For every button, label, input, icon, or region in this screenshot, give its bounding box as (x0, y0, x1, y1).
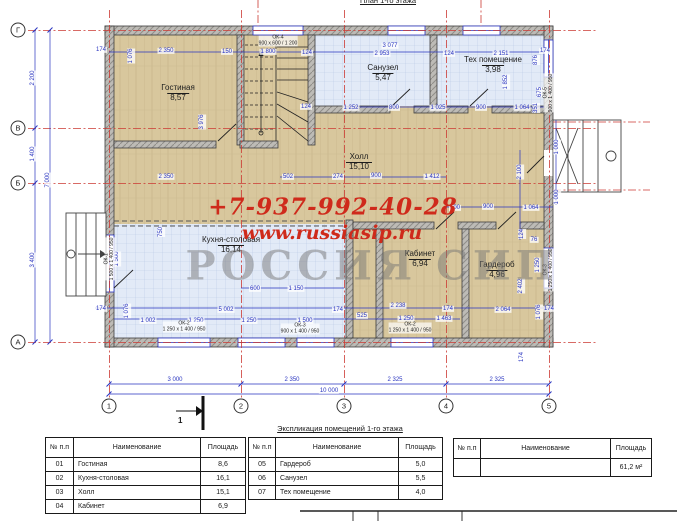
col-header-num: № п.п (249, 438, 276, 458)
cell-name: Санузел (276, 472, 399, 486)
dimension-label: 1 400 (29, 146, 37, 161)
col-header-name: Наименование (276, 438, 399, 458)
axis-bubble: Г (11, 23, 26, 38)
room-area: 3,98 (482, 65, 504, 75)
dimension-label: 1 076 (535, 304, 543, 319)
explication-table-right: № п.п Наименование Площадь 05 Гардероб 5… (248, 437, 443, 500)
cell-name: Холл (74, 486, 201, 500)
axis-bubble: 2 (234, 399, 249, 414)
window-tag-size: 1 250 x 1 400 / 950 (163, 327, 206, 333)
room-name: Холл (346, 153, 372, 162)
cell-num: 02 (46, 472, 74, 486)
cell-num: 05 (249, 458, 276, 472)
dimension-label: 351 (532, 103, 540, 113)
dimension-label: 2 350 (157, 48, 174, 54)
dimension-label: 876 (532, 55, 540, 65)
cell-area: 8,6 (201, 458, 246, 472)
explication-caption: Экспликация помещений 1-го этажа (277, 424, 403, 433)
cell-num: 01 (46, 458, 74, 472)
dimension-label: 2 238 (389, 303, 406, 309)
drawing-title: План 1-го этажа (360, 0, 416, 5)
dimension-label: 502 (282, 174, 294, 180)
window-tag-size: 900 x 1 400 / 950 (549, 74, 555, 113)
dimension-label: 174 (332, 307, 344, 313)
dimension-label: 1 800 (259, 49, 276, 55)
room-area: 15,10 (346, 162, 372, 172)
dimension-label: 124 (300, 104, 312, 110)
dimension-label: 2 200 (29, 70, 37, 85)
dimension-label: 1 076 (127, 48, 135, 63)
room-area: 8,57 (167, 93, 189, 103)
axis-bubble: 1 (102, 399, 117, 414)
floors-layer (114, 35, 544, 338)
dimension-label: 274 (332, 174, 344, 180)
dimension-label: 2 325 (386, 377, 403, 383)
window-tag: ОК-1 1 500 x 1 400 / 950 (105, 238, 116, 281)
cell-total-area: 61,2 м² (611, 459, 652, 477)
section-label: 1 (178, 416, 182, 425)
cell-num: 03 (46, 486, 74, 500)
room-label: Санузел 5,47 (367, 64, 398, 83)
window-tag: ОК-2 1 250 x 1 400 / 950 (163, 322, 206, 333)
cell-area: 15,1 (201, 486, 246, 500)
dimension-label: 1 250 (240, 318, 257, 324)
dimension-label: 1 463 (435, 316, 452, 322)
col-header-num: № п.п (454, 439, 481, 459)
room-name: Санузел (367, 64, 398, 73)
dimension-label: 150 (221, 49, 233, 55)
table-row: 06 Санузел 5,5 (249, 472, 443, 486)
cell-area: 5,5 (399, 472, 443, 486)
dimension-label: 2 350 (157, 174, 174, 180)
cell-num: 06 (249, 472, 276, 486)
cell-num: 04 (46, 500, 74, 514)
table-row: 03 Холл 15,1 (46, 486, 246, 500)
col-header-area: Площадь (201, 438, 246, 458)
window-tag: ОК-3 900 x 1 400 / 950 (281, 324, 320, 335)
dimension-label: 2 100 (516, 164, 524, 179)
window-tag-size: 1 500 x 1 400 / 950 (110, 238, 116, 281)
dimension-label: 3 400 (29, 252, 37, 267)
dimension-label: 2 151 (492, 51, 509, 57)
dimension-label: 750 (157, 227, 165, 237)
cell-name: Кабинет (74, 500, 201, 514)
dimension-label: 5 002 (217, 307, 234, 313)
col-header-name: Наименование (481, 439, 611, 459)
cell-area: 5,0 (399, 458, 443, 472)
dimension-label: 525 (356, 313, 368, 319)
dimension-label: 174 (539, 48, 551, 54)
cell-name: Тех помещение (276, 486, 399, 500)
dimension-label: 1 002 (139, 318, 156, 324)
dimension-label: 3 976 (198, 114, 206, 129)
window-tag-size: 1 250 x 1 400 / 950 (389, 328, 432, 334)
blueprint-canvas: План 1-го этажа Гостиная 8,57 Санузел 5,… (0, 0, 677, 521)
axis-bubble: 5 (542, 399, 557, 414)
dimension-label: 174 (543, 306, 555, 312)
dimension-label: 174 (442, 306, 454, 312)
dimension-label: 1 000 (553, 139, 561, 154)
dimension-label: 174 (95, 47, 107, 53)
room-label: Гостиная 8,57 (161, 84, 195, 103)
table-row: 01 Гостиная 8,6 (46, 458, 246, 472)
col-header-name: Наименование (74, 438, 201, 458)
dimension-label: 1 064 (522, 205, 539, 211)
table-row: 07 Тех помещение 4,0 (249, 486, 443, 500)
watermark-phone: +7-937-992-40-28 (208, 194, 458, 221)
dimension-label: 900 (370, 173, 382, 179)
cell-name: Гардероб (276, 458, 399, 472)
dimension-label: 3 000 (166, 377, 183, 383)
dimension-label: 2 325 (488, 377, 505, 383)
room-label: Тех помещение 3,98 (464, 56, 522, 75)
col-header-area: Площадь (611, 439, 652, 459)
dimension-label: 1 252 (342, 105, 359, 111)
cell-area: 4,0 (399, 486, 443, 500)
watermark-brand: РОССИЯ СИП (186, 243, 559, 290)
room-area: 5,47 (372, 73, 394, 83)
dimension-label: 174 (95, 306, 107, 312)
cell-area: 6,9 (201, 500, 246, 514)
total-area-table: № п.п Наименование Площадь 61,2 м² (453, 438, 652, 477)
dimension-label: 900 (482, 204, 494, 210)
axis-bubble: Б (11, 176, 26, 191)
dimension-label: 10 000 (319, 388, 339, 394)
dimension-label: 2 953 (373, 51, 390, 57)
cell-area: 16,1 (201, 472, 246, 486)
title-block-fragment (300, 511, 677, 521)
axis-bubble: В (11, 121, 26, 136)
dimension-label: 124 (518, 229, 526, 239)
room-name: Гостиная (161, 84, 195, 93)
table-row: 05 Гардероб 5,0 (249, 458, 443, 472)
dimension-label: 900 (475, 105, 487, 111)
dimension-label: 800 (388, 105, 400, 111)
cell-name: Кухня-столовая (74, 472, 201, 486)
col-header-area: Площадь (399, 438, 443, 458)
cell-name: Гостиная (74, 458, 201, 472)
dimension-label: 174 (518, 352, 526, 362)
table-row: 61,2 м² (454, 459, 652, 477)
dimension-label: 1 412 (423, 174, 440, 180)
dimension-label: 124 (443, 51, 455, 57)
cell-name (481, 459, 611, 477)
window-tag: ОК-5 900 x 1 400 / 950 (544, 74, 555, 113)
room-name: Тех помещение (464, 56, 522, 65)
table-header-row: № п.п Наименование Площадь (46, 438, 246, 458)
dimension-label: 1 064 (513, 105, 530, 111)
col-header-num: № п.п (46, 438, 74, 458)
table-row: 02 Кухня-столовая 16,1 (46, 472, 246, 486)
window-tag-size: 900 x 600 / 1 200 (259, 41, 298, 47)
dimension-label: 7 000 (44, 172, 52, 187)
window-tag: ОК-2 1 250 x 1 400 / 950 (389, 323, 432, 334)
table-row: 04 Кабинет 6,9 (46, 500, 246, 514)
dimension-label: 2 064 (494, 307, 511, 313)
window-tag: ОК-4 900 x 600 / 1 200 (259, 36, 298, 47)
cell-num (454, 459, 481, 477)
window-tag-size: 900 x 1 400 / 950 (281, 329, 320, 335)
watermark-website: www.russiasip.ru (242, 222, 422, 244)
table-header-row: № п.п Наименование Площадь (454, 439, 652, 459)
dimension-label: 2 350 (283, 377, 300, 383)
axis-bubble: 4 (439, 399, 454, 414)
dimension-label: 1 025 (429, 105, 446, 111)
dimension-label: 1 000 (553, 189, 561, 204)
dimension-label: 124 (301, 50, 313, 56)
right-porch-steps (553, 120, 621, 192)
dimension-label: 1 076 (123, 303, 131, 318)
axis-bubble: 3 (337, 399, 352, 414)
axis-bubble: А (11, 335, 26, 350)
table-header-row: № п.п Наименование Площадь (249, 438, 443, 458)
left-porch-steps (66, 213, 106, 296)
dimension-label: 3 077 (381, 43, 398, 49)
cell-num: 07 (249, 486, 276, 500)
dimension-label: 1 852 (502, 74, 510, 89)
explication-table-left: № п.п Наименование Площадь 01 Гостиная 8… (45, 437, 246, 514)
room-label: Холл 15,10 (346, 153, 372, 172)
